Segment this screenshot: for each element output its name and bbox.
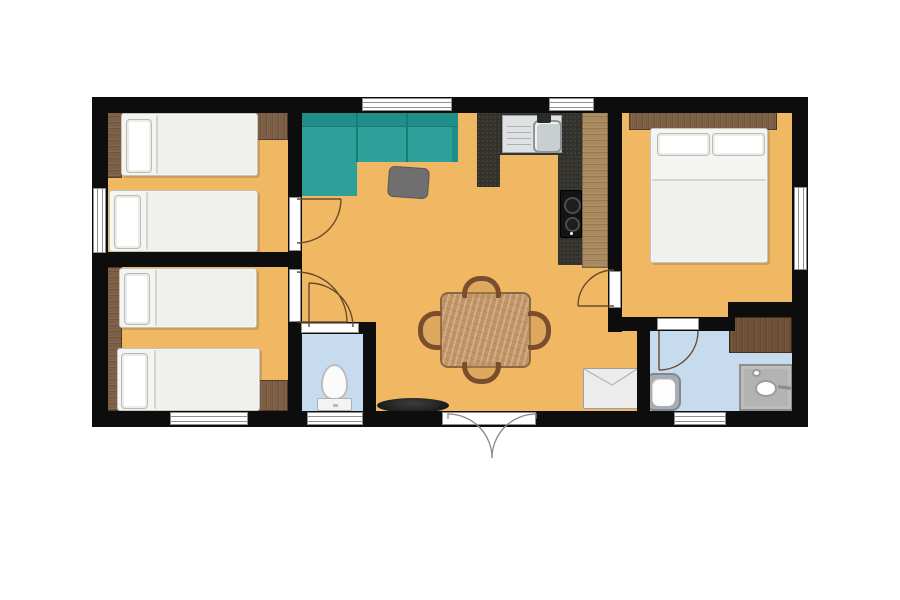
pillow xyxy=(712,133,765,156)
shower xyxy=(739,364,793,411)
pillow xyxy=(114,195,141,249)
sofa-seat-cushions xyxy=(357,127,452,162)
door-opening-bedroom2 xyxy=(289,269,301,322)
toilet-tank xyxy=(317,398,352,411)
kitchen-hob xyxy=(560,190,582,238)
bedroom1-single-bed-2 xyxy=(109,190,258,252)
hob-knob xyxy=(570,232,573,235)
pillow xyxy=(121,353,148,409)
burner xyxy=(564,197,581,214)
kitchen-sink xyxy=(502,115,562,153)
duvet xyxy=(652,179,766,261)
window-left-bedroom1 xyxy=(93,188,106,253)
wall-bedroom3-bottom xyxy=(728,302,808,317)
window-bottom-bedroom2 xyxy=(170,412,248,425)
shower-dot xyxy=(752,369,761,377)
cushion-seam xyxy=(406,113,408,162)
toilet-bowl xyxy=(321,364,348,400)
washbasin xyxy=(645,373,681,411)
bathroom-wardrobe-cabinet xyxy=(729,317,792,353)
pouf xyxy=(387,166,430,200)
floor-plan xyxy=(0,0,900,600)
window-top-living xyxy=(362,98,452,111)
door-opening-bathroom xyxy=(657,318,699,330)
bedroom3-double-bed xyxy=(650,128,768,263)
bedroom1-single-bed-1 xyxy=(121,113,258,176)
dining-table xyxy=(440,292,531,368)
pillow xyxy=(657,133,710,156)
burner xyxy=(565,217,580,232)
duvet xyxy=(146,192,256,250)
bedroom1-corner-shelf xyxy=(253,111,288,140)
cushion-seam xyxy=(356,113,358,162)
window-bottom-wc xyxy=(307,412,363,425)
window-right-bedroom3 xyxy=(794,187,807,270)
wall-bedroom1-bedroom2 xyxy=(92,252,302,267)
kitchen-faucet xyxy=(537,113,551,123)
sink-drainer xyxy=(507,121,531,149)
corner-sofa xyxy=(300,113,458,196)
flush-button xyxy=(333,404,338,407)
wall-bedrooms-living xyxy=(288,97,302,427)
sofa-backrest xyxy=(300,113,458,127)
window-bottom-bathroom xyxy=(674,412,726,425)
door-opening-bedroom1 xyxy=(289,197,301,251)
sofa-armrest xyxy=(452,113,458,162)
duvet xyxy=(156,115,256,174)
duvet xyxy=(154,350,258,409)
entrance-door-opening xyxy=(442,412,536,425)
wall-wc-right xyxy=(363,322,376,411)
door-opening-wc xyxy=(301,323,359,333)
kitchen-counter-left xyxy=(477,155,500,187)
bedroom1-closet-strip xyxy=(106,111,122,178)
shower-arm xyxy=(778,385,791,390)
door-opening-bedroom3 xyxy=(609,271,621,308)
window-top-kitchen xyxy=(549,98,594,111)
bedroom2-single-bed-2 xyxy=(117,348,260,411)
wall-bathroom-left xyxy=(637,331,650,411)
bedroom2-single-bed-1 xyxy=(119,268,257,328)
washbasin-bowl xyxy=(652,379,675,406)
sink-basin xyxy=(533,120,562,153)
kitchen-cabinet-run xyxy=(582,111,608,268)
pillow xyxy=(126,119,152,173)
cushion-seam xyxy=(300,126,458,127)
sofa-chaise xyxy=(300,127,357,196)
fridge xyxy=(583,368,638,409)
shower-drain xyxy=(755,380,777,397)
duvet xyxy=(155,270,255,326)
pillow xyxy=(124,273,150,325)
